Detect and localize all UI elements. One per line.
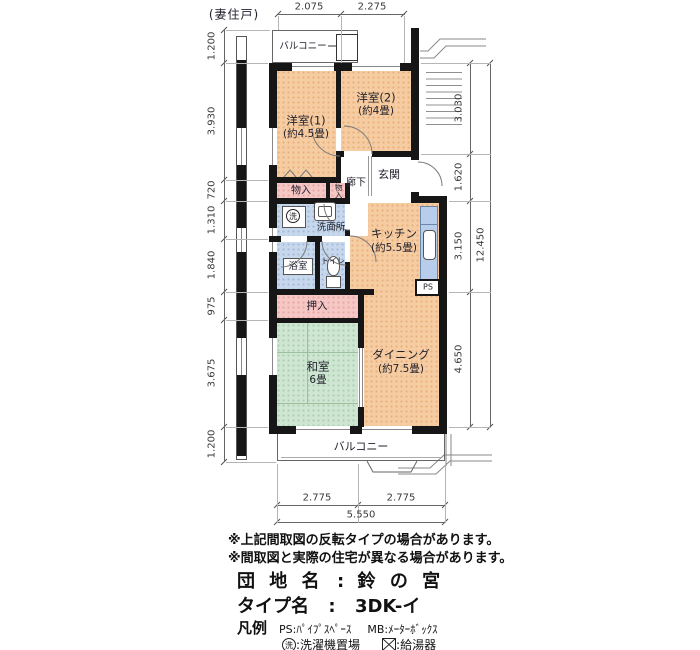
window-left-3 <box>269 338 277 375</box>
legend-boiler-desc: :給湯器 <box>396 636 436 650</box>
window-left-1 <box>269 128 277 165</box>
wall-oshiire-south <box>269 318 363 323</box>
dim-left-7: 3.675 <box>207 359 218 388</box>
window-top-2 <box>352 63 400 71</box>
closet2-label: 物入 <box>334 184 342 199</box>
sliding-door-washitsu <box>358 348 364 407</box>
ext-line <box>226 320 268 321</box>
ext-line <box>341 16 342 63</box>
ext-line <box>226 180 268 181</box>
balcony-bottom-innerline <box>281 457 441 458</box>
note-1: ※上記間取図の反転タイプの場合があります。 <box>228 529 499 548</box>
dim-left-6: 975 <box>207 296 218 315</box>
washroom-sink-bowl <box>318 206 332 217</box>
gable-window <box>241 228 242 252</box>
genkan-step-line <box>371 156 372 196</box>
wall-kitchen-dining-left <box>345 289 374 295</box>
ext-line <box>449 427 491 428</box>
window-bottom-1 <box>296 426 350 434</box>
legend-title: 凡例 <box>237 617 267 638</box>
gable-wall-segment <box>237 375 246 456</box>
floor-plan-page: (妻住戸) <box>0 0 700 650</box>
washitsu-name: 和室 <box>307 361 330 374</box>
wall-washitsu-dining <box>358 407 364 427</box>
wall-bath-toilet <box>315 242 320 289</box>
dining-size: (約7.5畳) <box>378 364 424 376</box>
estate-name-row: 団 地 名 : 鈴 の 宮 <box>237 567 444 593</box>
window-top-1 <box>292 63 334 71</box>
ext-line <box>449 292 491 293</box>
dim-right-2: 1.620 <box>454 163 465 192</box>
balcony-top-label: バルコニー <box>279 42 326 52</box>
legend-mb: MB:ﾒｰﾀｰﾎﾞｯｸｽ <box>367 621 437 637</box>
legend-row-1: 凡例 PS:ﾊﾟｲﾌﾟｽﾍﾟｰｽ MB:ﾒｰﾀｰﾎﾞｯｸｽ <box>237 617 438 638</box>
gable-wall-segment <box>237 252 246 338</box>
ext-line <box>404 16 405 63</box>
ext-line <box>226 63 268 64</box>
dim-line-right <box>470 63 471 427</box>
wall-closet-south <box>269 198 350 204</box>
dining-name: ダイニング <box>372 349 430 362</box>
dim-left-8: 1.200 <box>207 430 218 459</box>
dim-left-5: 1.840 <box>207 251 218 280</box>
wall-washroom-south <box>269 236 281 242</box>
yoshitsu1-name: 洋室(1) <box>286 115 325 128</box>
wall-yoshitsu1-south <box>269 177 341 183</box>
ext-line <box>226 292 268 293</box>
dim-line-right-total <box>490 63 491 427</box>
dim-left-3: 720 <box>207 180 218 199</box>
dim-bottom-2: 2.775 <box>387 493 416 504</box>
bath-label: 浴室 <box>288 262 307 272</box>
dim-right-1: 3.030 <box>454 94 465 123</box>
legend-boiler-icon <box>382 638 396 650</box>
tatami-line <box>277 352 358 353</box>
wall-mid-vertical <box>345 230 350 236</box>
wall-closet-divider <box>326 183 330 198</box>
ext-line <box>278 16 279 30</box>
type-separator: : <box>309 596 355 617</box>
toilet-tank <box>326 276 341 288</box>
type-value: 3DK-イ <box>355 592 420 618</box>
wall-mid-vertical <box>345 262 350 292</box>
gable-window <box>241 338 242 375</box>
tatami-line <box>277 403 358 404</box>
genkan-step-line <box>368 156 369 196</box>
dim-right-total: 12.450 <box>476 228 487 263</box>
closet1-label: 物入 <box>291 186 311 197</box>
ext-line <box>226 239 268 240</box>
dim-bottom-1: 2.775 <box>303 493 332 504</box>
dim-line-bottom-1 <box>277 505 446 506</box>
ext-line <box>445 464 446 523</box>
ext-line <box>277 464 278 523</box>
yoshitsu2-size: (約4畳) <box>358 106 394 118</box>
legend-row-2: 洗 :洗濯機置場 :給湯器 <box>282 636 436 650</box>
ext-line <box>226 30 270 31</box>
dim-top-2: 2.275 <box>358 2 387 13</box>
ext-line <box>421 63 491 64</box>
wall-washitsu-dining <box>358 289 364 348</box>
ext-line <box>421 154 491 155</box>
dim-right-4: 4.650 <box>454 345 465 374</box>
oshiire-label: 押入 <box>307 301 328 313</box>
legend-ps: PS:ﾊﾟｲﾌﾟｽﾍﾟｰｽ <box>279 621 351 637</box>
dim-line-bottom-2 <box>277 522 446 523</box>
end-unit-label: (妻住戸) <box>209 8 259 21</box>
pipe-space-label: PS <box>423 284 433 293</box>
ext-line <box>226 201 268 202</box>
type-label: タイプ名 <box>237 592 309 618</box>
dim-line-left <box>224 30 225 462</box>
dim-top-1: 2.075 <box>295 2 324 13</box>
estate-separator: : <box>324 571 358 592</box>
wall-room-divider <box>336 70 341 128</box>
ext-line <box>226 427 268 428</box>
toilet-label: トイレ <box>321 258 345 267</box>
gable-wall-segment <box>237 165 246 228</box>
kitchen-name: キッチン <box>371 228 417 241</box>
estate-value: 鈴 の 宮 <box>358 567 445 593</box>
legend-washer-desc: :洗濯機置場 <box>296 636 360 650</box>
yoshitsu1-size: (約4.5畳) <box>283 129 329 141</box>
wall-east-lower <box>439 196 447 433</box>
water-heater-box <box>336 34 358 61</box>
type-name-row: タイプ名 : 3DK-イ <box>237 592 420 618</box>
kitchen-counter-line <box>420 224 438 225</box>
dim-bottom-total: 5.550 <box>347 510 376 521</box>
note-2: ※間取図と実際の住宅が異なる場合があります。 <box>228 547 512 566</box>
ext-line <box>449 201 491 202</box>
entrance-opening <box>411 160 419 192</box>
dim-line-top <box>278 14 405 15</box>
dim-left-2: 3.930 <box>207 107 218 136</box>
kitchen-size: (約5.5畳) <box>371 243 417 255</box>
kitchen-sink <box>423 230 436 260</box>
hallway-extension <box>350 203 368 236</box>
gable-window <box>241 128 242 165</box>
legend-washer-icon: 洗 <box>282 638 296 650</box>
dim-left-1: 1.200 <box>207 32 218 61</box>
gable-wall-segment <box>237 60 246 128</box>
dim-left-4: 1.310 <box>207 206 218 235</box>
yoshitsu2-name: 洋室(2) <box>356 92 395 105</box>
window-bottom-2 <box>362 426 412 434</box>
hallway-label: 廊下 <box>346 178 366 189</box>
balcony-bottom-label: バルコニー <box>334 441 389 453</box>
estate-label: 団 地 名 <box>237 567 324 593</box>
washroom-label: 洗面所 <box>317 223 346 233</box>
ext-line <box>226 462 276 463</box>
washing-machine-icon: 洗 <box>286 209 300 223</box>
genkan-label: 玄関 <box>378 169 400 181</box>
washitsu-size: 6畳 <box>309 375 326 387</box>
dim-right-3: 3.150 <box>454 232 465 261</box>
